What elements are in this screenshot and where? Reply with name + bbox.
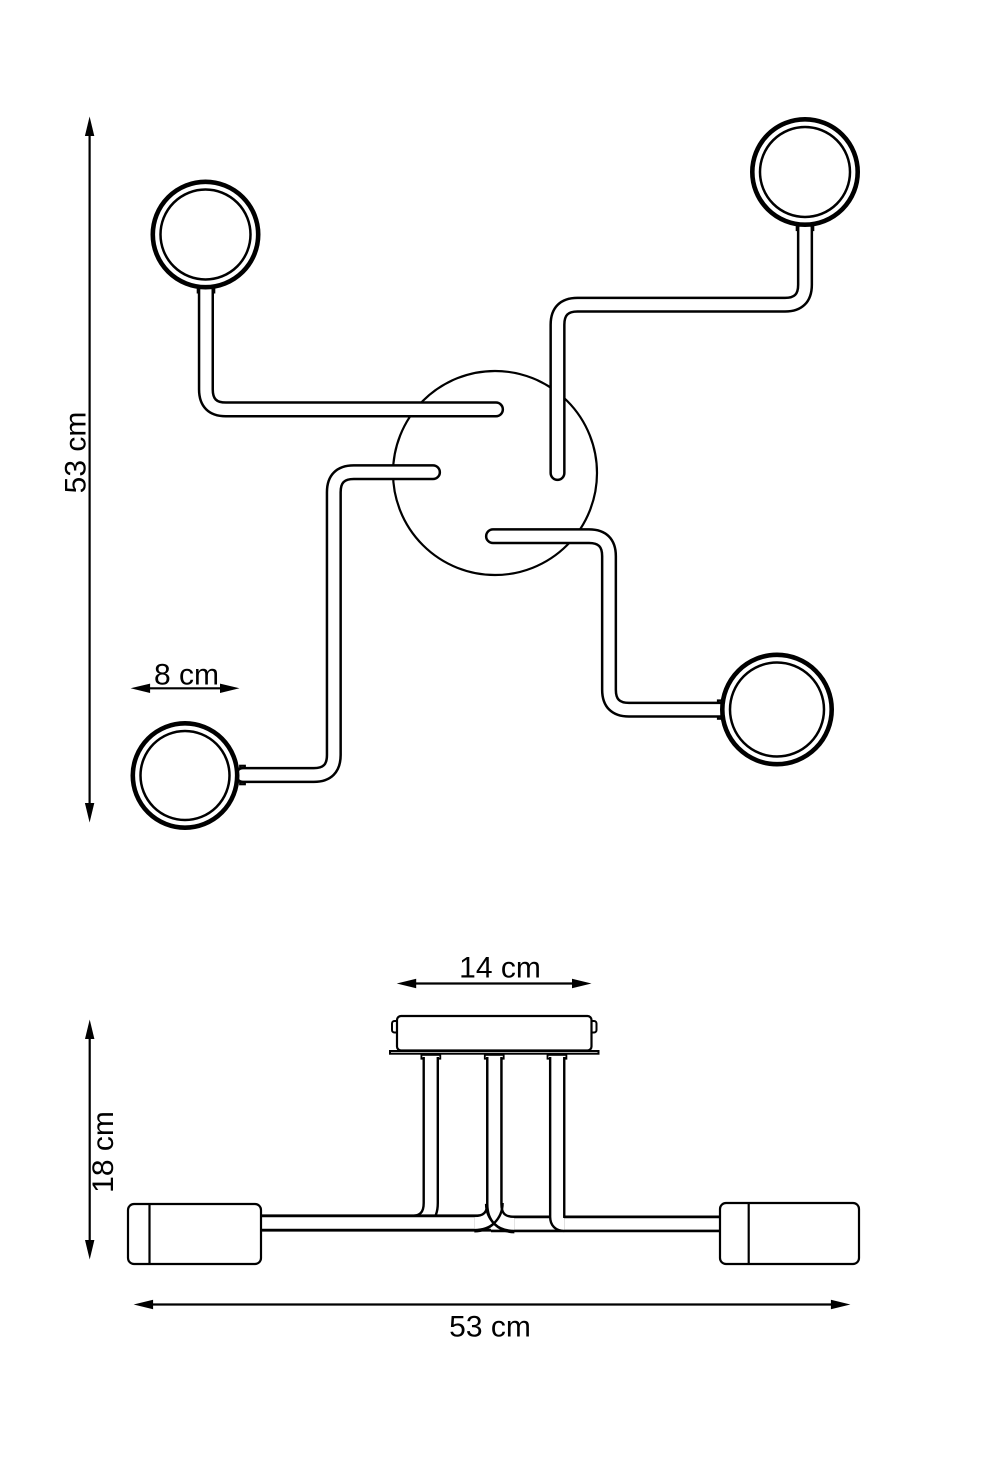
svg-text:53 cm: 53 cm: [59, 412, 92, 494]
svg-text:8 cm: 8 cm: [154, 659, 219, 692]
svg-text:18 cm: 18 cm: [87, 1111, 120, 1193]
svg-text:14 cm: 14 cm: [459, 952, 541, 985]
svg-text:53 cm: 53 cm: [449, 1311, 531, 1344]
